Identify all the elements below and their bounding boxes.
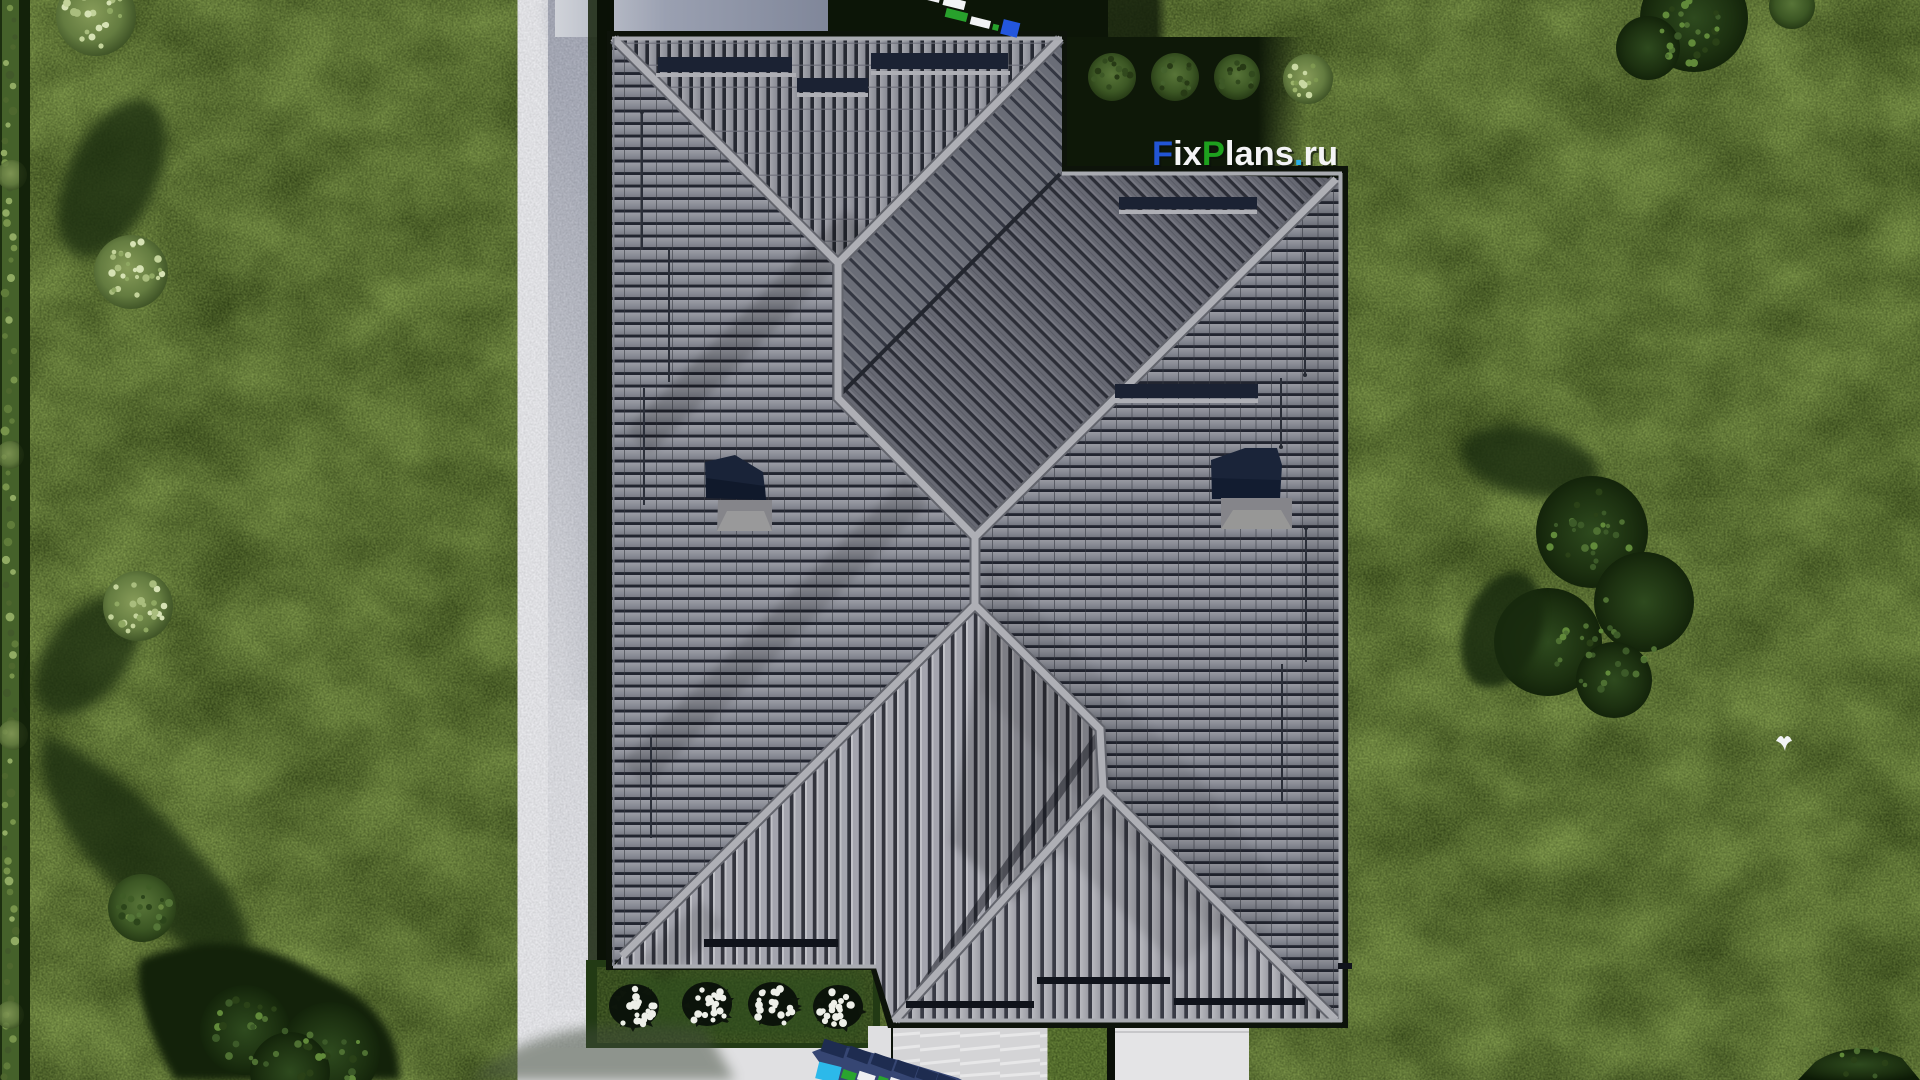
svg-text:FixPlans.ru: FixPlans.ru xyxy=(1152,135,1338,173)
